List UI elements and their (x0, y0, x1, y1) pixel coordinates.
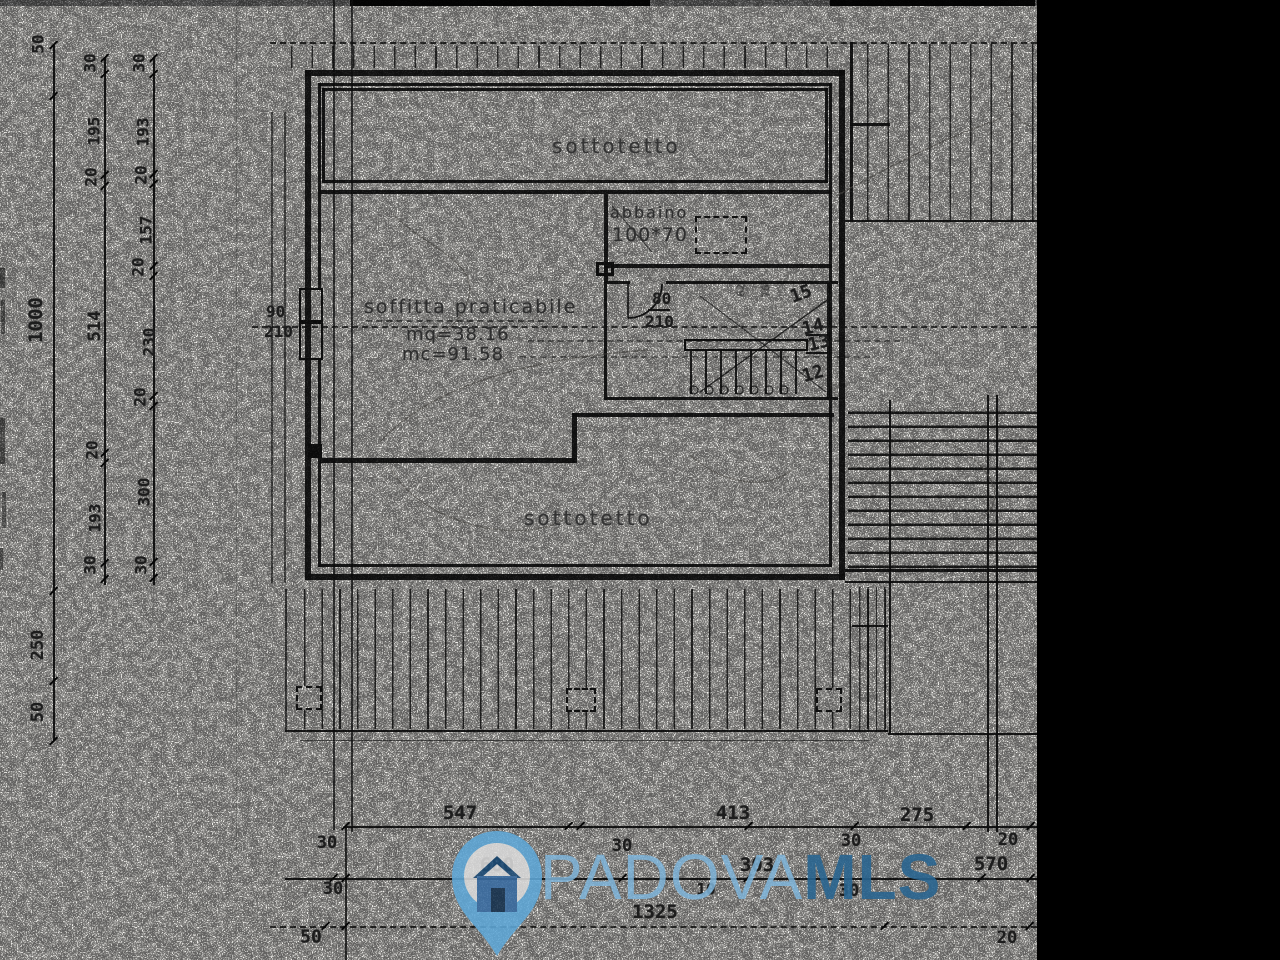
roof-opening-1 (296, 686, 322, 710)
wall-pillar-marker (308, 444, 322, 458)
loft-area-note: mq=38.16 (406, 324, 510, 345)
dormer-label: abbaino (610, 203, 688, 222)
dim-label: 547 (443, 802, 477, 824)
dim-label: 303 (740, 854, 774, 876)
room-label-bottom-attic: sottotetto (524, 506, 653, 530)
scan-top-bar (0, 0, 1037, 6)
dim-label: 193 (134, 118, 153, 147)
dim-label: 30 (130, 53, 149, 72)
map-pin-house-icon (447, 826, 547, 958)
dim-label: 20 (131, 387, 150, 406)
scan-void-band (1037, 0, 1280, 960)
roof-opening-2 (566, 688, 596, 712)
dim-label: 230 (140, 328, 159, 357)
watermark-brand-bold: MLS (803, 841, 941, 913)
door-height-label: 210 (645, 312, 674, 331)
room-label-loft: soffitta praticabile (364, 296, 577, 318)
dim-label: 30 (612, 836, 632, 856)
door-width-label: 80 (652, 289, 671, 308)
dim-label: 195 (85, 117, 104, 146)
floorplan-scan: sottotetto sottotetto soffitta praticabi… (0, 0, 1280, 960)
dim-label: 12 (800, 361, 827, 387)
loft-volume-note: mc=91.58 (402, 344, 504, 365)
dim-label: 20 (998, 830, 1018, 850)
dim-label: 10 (696, 880, 715, 899)
dormer-size-label: 100*70 (612, 224, 688, 246)
dim-label: 30 (81, 53, 100, 72)
room-label-top-attic: sottotetto (552, 134, 681, 158)
dim-label: 20 (83, 440, 102, 459)
dim-label: 20 (997, 928, 1017, 948)
dim-label: 30 (323, 879, 343, 899)
dim-label: 50 (29, 34, 48, 53)
dim-label: 570 (974, 853, 1008, 875)
dim-label: 30 (841, 831, 861, 851)
roof-opening-3 (816, 688, 842, 712)
dim-label: 20 (132, 165, 151, 184)
dim-label: 50 (300, 927, 322, 948)
dim-label: 30 (81, 555, 100, 574)
dormer-window-dashed (695, 216, 747, 254)
dim-label: 413 (716, 802, 750, 824)
window-width-label: 90 (266, 302, 285, 321)
dim-label: 30 (839, 881, 859, 901)
roof-hatch-right (848, 44, 1036, 222)
dim-label: 15 (787, 280, 815, 307)
dim-label: 300 (135, 478, 154, 507)
dim-label: 193 (86, 504, 105, 533)
dim-label: 275 (900, 804, 934, 826)
scan-paper: sottotetto sottotetto soffitta praticabi… (0, 0, 1037, 960)
dim-label: 680 (480, 854, 514, 876)
window-symbol-upper (299, 288, 323, 322)
dim-label: 1325 (632, 901, 678, 923)
stair-notch (596, 262, 614, 276)
dim-label: 157 (137, 216, 156, 245)
dim-label: 50 (28, 702, 48, 722)
dim-label: 250 (28, 630, 48, 661)
dim-label: 1000 (25, 297, 47, 343)
dim-label: 76 (760, 284, 773, 297)
window-height-label: 210 (264, 322, 293, 341)
stair-landing (684, 339, 808, 351)
window-symbol-lower (299, 322, 323, 360)
dim-label: 514 (85, 311, 105, 342)
dim-label: 20 (82, 167, 101, 186)
dim-label: 62 (735, 283, 748, 296)
roof-hatch-small (852, 587, 888, 732)
roof-hatch-top (272, 46, 845, 68)
dim-label: 30 (317, 833, 337, 853)
balcony-ladder-lines (848, 400, 1037, 572)
dim-label: 20 (129, 257, 148, 276)
dim-label: 30 (132, 555, 151, 574)
